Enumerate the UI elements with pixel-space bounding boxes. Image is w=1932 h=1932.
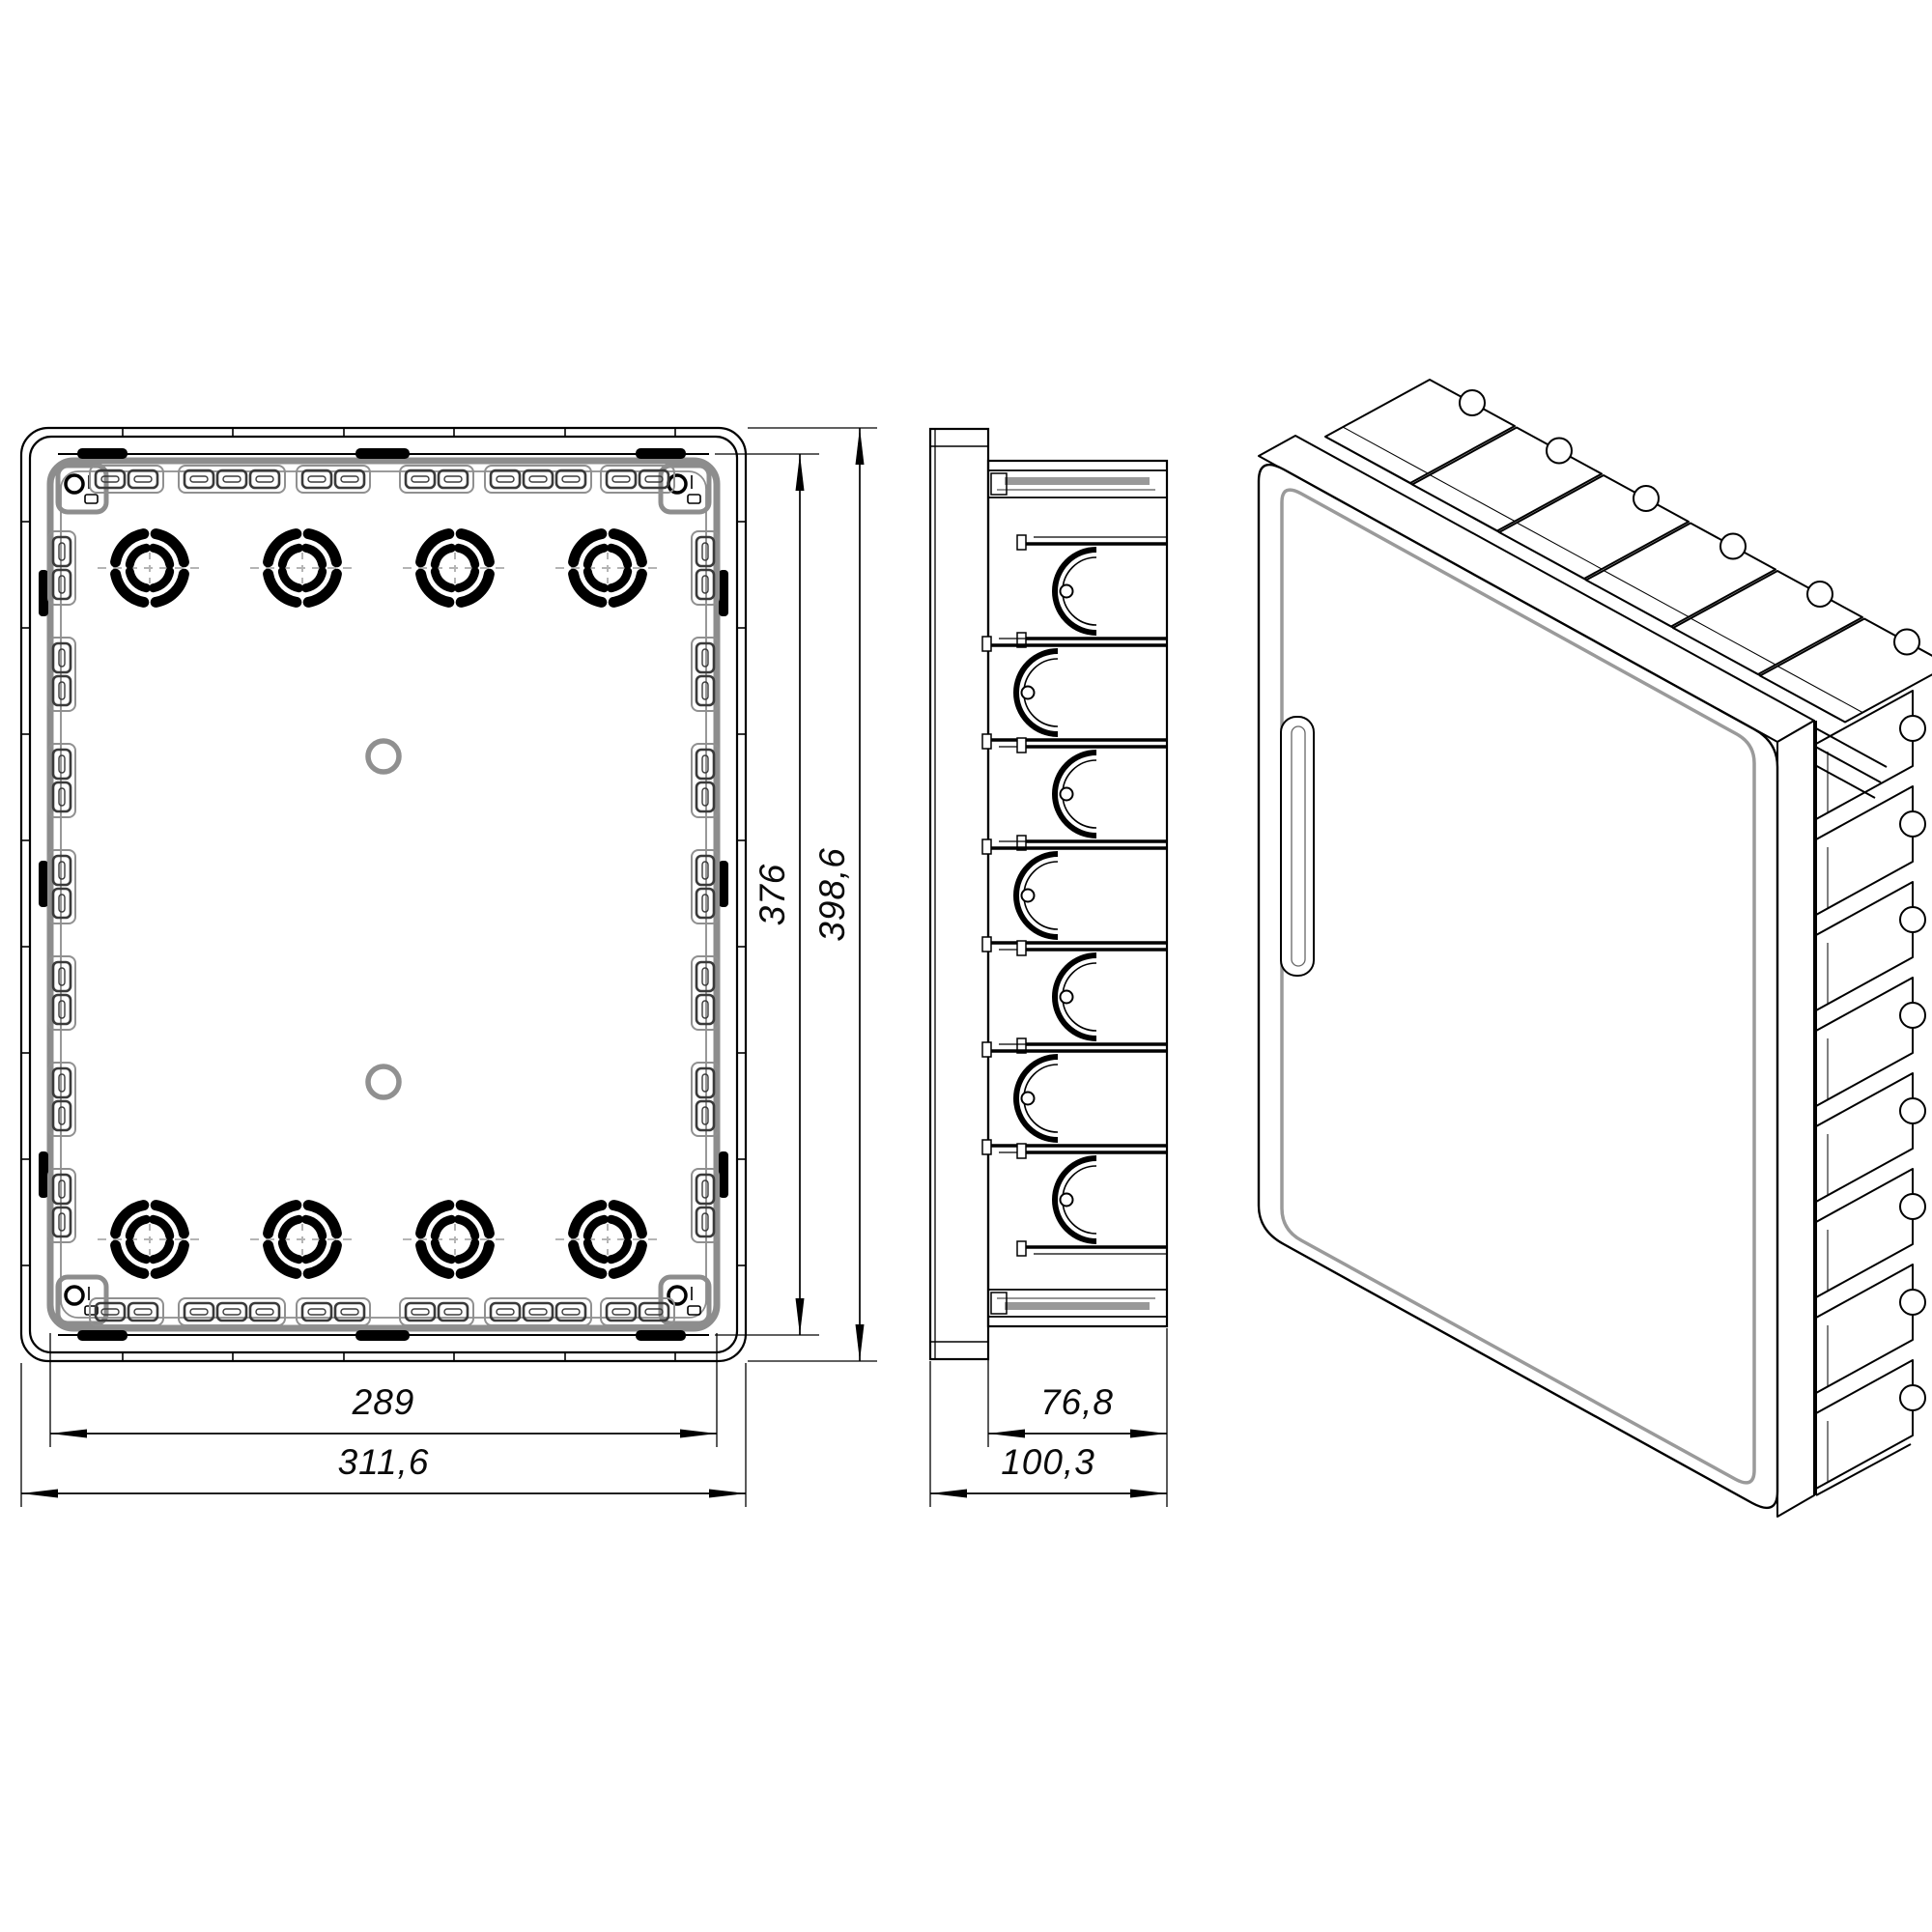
mounting-holes — [368, 741, 399, 1097]
dim-label-front-inner-width: 289 — [352, 1382, 415, 1422]
iso-door-handle — [1281, 717, 1314, 976]
iso-right-fins — [1816, 691, 1925, 1495]
side-cable-hooks — [982, 535, 1167, 1256]
bottom-slot-row — [90, 1298, 674, 1325]
side-view: 76,8 100,3 — [930, 429, 1167, 1507]
top-slot-row — [90, 466, 674, 493]
dim-label-front-inner-height: 376 — [753, 864, 792, 926]
knockout-openings — [98, 534, 660, 1274]
dimension-front-inner-height: 376 — [715, 454, 819, 1335]
dimension-front-inner-width: 289 — [50, 1333, 717, 1447]
dim-label-side-total-depth: 100,3 — [1001, 1442, 1095, 1482]
dim-label-side-body-depth: 76,8 — [1040, 1382, 1114, 1422]
front-view: 376 398,6 289 311,6 — [21, 428, 877, 1507]
technical-drawing-canvas: 376 398,6 289 311,6 — [0, 0, 1932, 1932]
dim-label-front-outer-height: 398,6 — [812, 847, 852, 942]
isometric-view — [1259, 380, 1932, 1517]
side-front-flange — [930, 429, 988, 1359]
dim-label-front-outer-width: 311,6 — [338, 1442, 430, 1482]
corner-screw-bosses — [58, 466, 709, 1323]
iso-door-side-face — [1777, 721, 1814, 1517]
